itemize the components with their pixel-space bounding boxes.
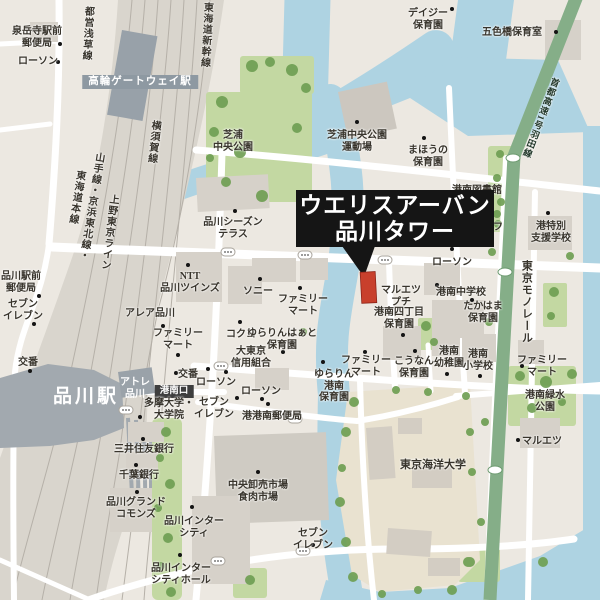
- atre-shinagawa-label: アトレ 品川: [120, 377, 150, 400]
- shinagawa-area-map: ウエリスアーバン 品川タワー 泉岳寺駅前 郵便局ローソン高輪ゲートウェイ駅都営浅…: [0, 0, 600, 600]
- bus-stop-icon: [298, 251, 312, 259]
- kounan-nursery-label: こうなん 保育園: [394, 356, 434, 379]
- shinagawa-intercity-hall-label: 品川インター シティホール: [151, 563, 211, 586]
- mitsui-sumitomo-bank-dot: [141, 437, 145, 441]
- goshikibashi-nursery-label: 五色橋保育室: [482, 27, 542, 39]
- familymart-area-dot: [176, 353, 180, 357]
- konan-kindergarten-dot: [445, 372, 449, 376]
- goshikibashi-nursery-dot: [554, 30, 558, 34]
- chuo-wholesale-meat-market-dot: [256, 470, 260, 474]
- lawson-center1-dot: [206, 367, 210, 371]
- seven-eleven-center-dot: [235, 396, 239, 400]
- minato-special-support-school-dot: [546, 211, 550, 215]
- shibaura-park-sports-ground-label: 芝浦中央公園 運動場: [327, 130, 387, 153]
- seven-eleven-center-label: セブン イレブン: [194, 397, 234, 420]
- shinagawa-ekimae-post-dot: [37, 294, 41, 298]
- sony-dot: [258, 277, 262, 281]
- maruetsu-label: マルエツ: [522, 436, 562, 448]
- lawson-east-label: ローソン: [432, 257, 472, 269]
- seven-eleven-west-dot: [32, 322, 36, 326]
- monorail-station-icon: [488, 466, 502, 474]
- property-callout-line2: 品川タワー: [335, 219, 455, 245]
- property-callout-line1: ウエリスアーバン: [299, 193, 491, 219]
- daitokyo-shinkumi-label: 大東京 信用組合: [231, 346, 271, 369]
- lawson-nw-label: ローソン: [18, 56, 58, 68]
- familymart-sony-dot: [298, 286, 302, 290]
- tama-university-dot: [138, 415, 142, 419]
- minato-konan-post-label: 港港南郵便局: [242, 411, 302, 423]
- shinagawa-station-label: 品川駅: [53, 386, 119, 408]
- sengakuji-post-label: 泉岳寺駅前 郵便局: [12, 26, 62, 49]
- tokyo-monorail-label: 東京モノレール: [520, 260, 533, 344]
- lawson-east-dot: [450, 247, 454, 251]
- shinagawa-intercity-dot: [190, 505, 194, 509]
- familymart-konan-west-label: ファミリー マート: [341, 355, 391, 378]
- chiba-bank-label: 千葉銀行: [119, 470, 159, 482]
- area-shinagawa-label: アレア品川: [125, 308, 175, 320]
- tama-university-label: 多摩大学・ 大学院: [144, 398, 194, 421]
- konan-exit-label: 港南口: [155, 385, 194, 398]
- shibaura-park-sports-ground-dot: [355, 120, 359, 124]
- lawson-center2-dot: [260, 397, 264, 401]
- shibaura-central-park-label: 芝浦 中央公園: [213, 130, 253, 153]
- shinagawa-intercity-hall-dot: [178, 553, 182, 557]
- konan-junior-high-label: 港南中学校: [436, 287, 486, 299]
- daisy-nursery-dot: [450, 7, 454, 11]
- featured-building-marker: [360, 272, 377, 304]
- familymart-sony-label: ファミリー マート: [278, 294, 328, 317]
- maruetsu-petit-label: マルエツ プチ: [381, 285, 421, 308]
- bus-stop-icon: [211, 557, 225, 565]
- shinagawa-grand-commons-label: 品川グランド コモンズ: [106, 497, 166, 520]
- yurarin-konan-nursery-dot: [321, 360, 325, 364]
- kounan-nursery-dot: [413, 349, 417, 353]
- bus-stop-icon: [214, 362, 228, 370]
- shinagawa-season-terrace-label: 品川シーズン テラス: [203, 217, 263, 240]
- familymart-east-label: ファミリー マート: [517, 355, 567, 378]
- seven-eleven-west-label: セブン イレブン: [3, 299, 43, 322]
- konan-elementary-dot: [478, 374, 482, 378]
- maruetsu-dot: [516, 438, 520, 442]
- shinagawa-intercity-label: 品川インター シティ: [164, 516, 224, 539]
- monorail-station-icon: [506, 154, 520, 162]
- konan-4chome-nursery-dot: [401, 333, 405, 337]
- koban-west-label: 交番: [18, 357, 38, 369]
- takahama-nursery-label: たかはま 保育園: [463, 301, 503, 324]
- ntt-shinagawa-twins-label: NTT 品川ツインズ: [160, 271, 220, 294]
- chuo-wholesale-meat-market-label: 中央卸売市場 食肉市場: [228, 480, 288, 503]
- lawson-center1-label: ローソン: [196, 377, 236, 389]
- tokyo-kaiyo-university-label: 東京海洋大学: [400, 459, 466, 472]
- bus-stop-icon: [119, 406, 133, 414]
- ntt-shinagawa-twins-dot: [186, 263, 190, 267]
- minato-special-support-school-label: 港特別 支援学校: [531, 221, 571, 244]
- mahou-nursery-dot: [422, 136, 426, 140]
- sony-label: ソニー: [243, 286, 273, 298]
- koban-west-dot: [28, 369, 32, 373]
- mitsui-sumitomo-bank-label: 三井住友銀行: [114, 444, 174, 456]
- koban-center-label: 交番: [178, 369, 198, 381]
- daitokyo-shinkumi-dot: [224, 370, 228, 374]
- konan-ryokusui-park-label: 港南緑水 公園: [525, 390, 565, 413]
- bus-stop-icon: [221, 248, 235, 256]
- property-callout: ウエリスアーバン 品川タワー: [296, 190, 494, 247]
- toei-asakusa-line-label: 都営浅草線: [79, 6, 93, 62]
- lawson-center2-label: ローソン: [241, 386, 281, 398]
- konan-elementary-label: 港南 小学校: [463, 349, 493, 372]
- familymart-area-label: ファミリー マート: [153, 328, 203, 351]
- daisy-nursery-label: デイジー 保育園: [408, 8, 448, 31]
- chiba-bank-dot: [134, 463, 138, 467]
- familymart-konan-west-dot: [363, 350, 367, 354]
- seven-eleven-south-label: セブン イレブン: [293, 528, 333, 551]
- bus-stop-icon: [378, 256, 392, 264]
- kokuyo-dot: [238, 320, 242, 324]
- konan-4chome-nursery-label: 港南四丁目 保育園: [374, 307, 424, 330]
- minato-konan-post-dot: [266, 402, 270, 406]
- monorail-station-icon: [498, 268, 512, 276]
- mahou-nursery-label: まほうの 保育園: [408, 145, 448, 168]
- shinagawa-ekimae-post-label: 品川駅前 郵便局: [1, 271, 41, 294]
- shinagawa-season-terrace-dot: [233, 209, 237, 213]
- shinagawa-grand-commons-dot: [135, 490, 139, 494]
- konan-kindergarten-label: 港南 幼稚園: [434, 346, 464, 369]
- takanawa-gateway-station-label: 高輪ゲートウェイ駅: [82, 75, 198, 89]
